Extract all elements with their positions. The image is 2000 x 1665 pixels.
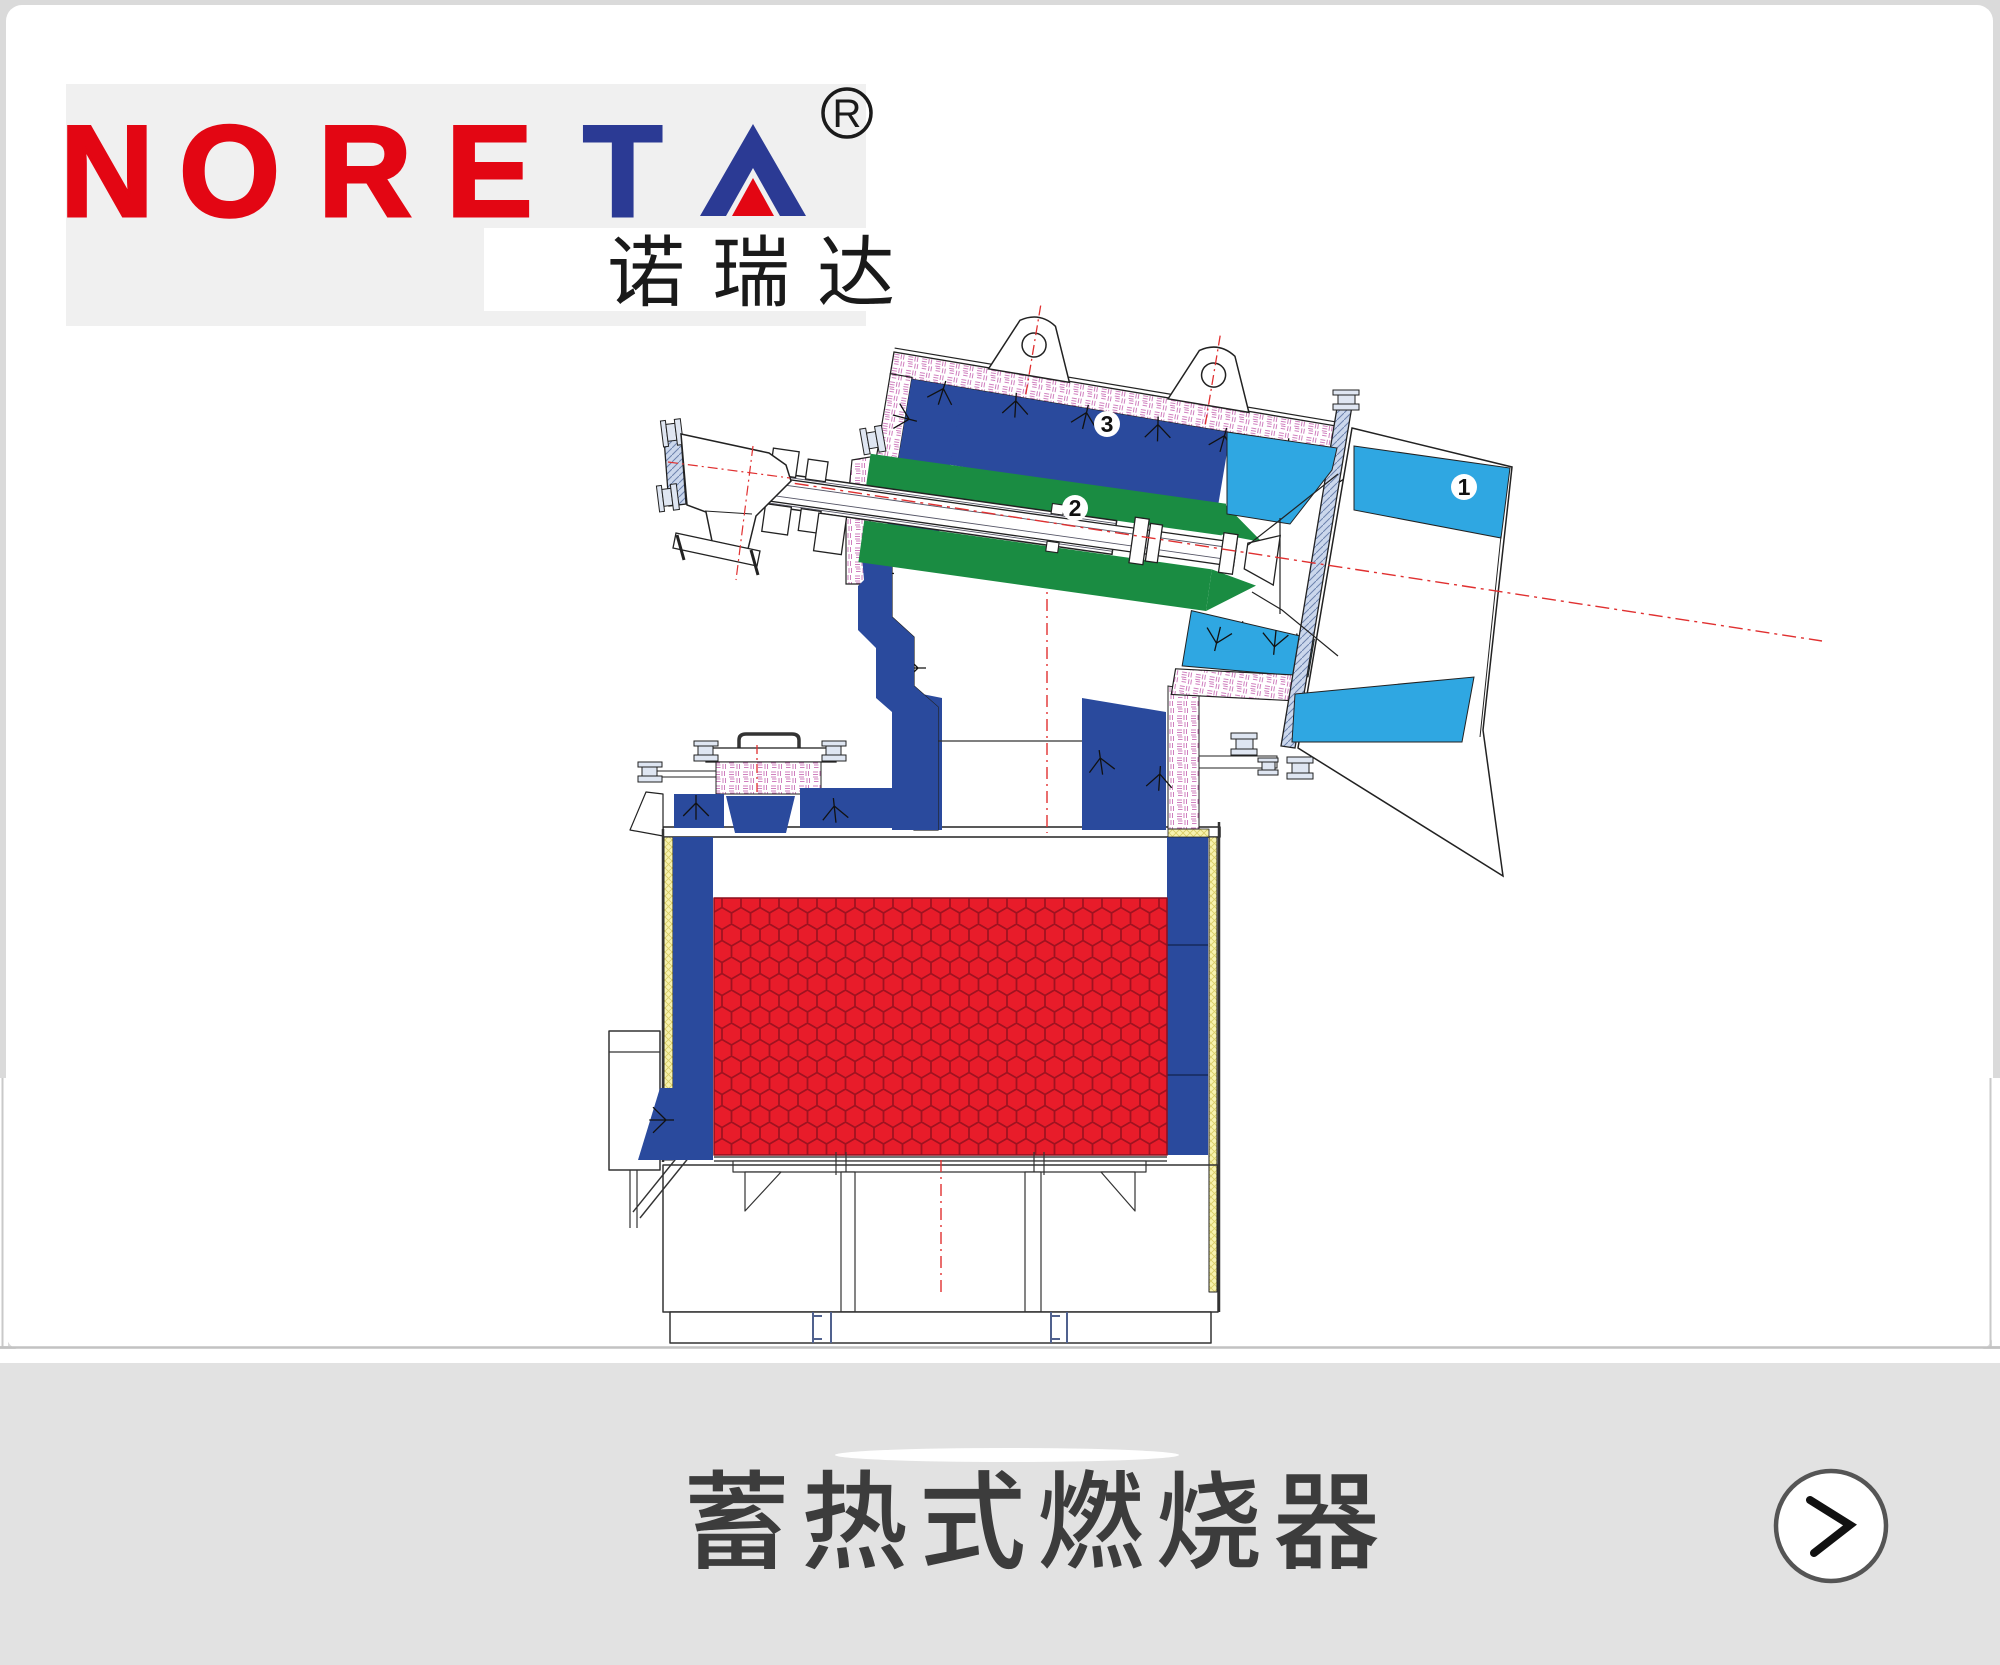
svg-text:E: E	[446, 98, 533, 244]
svg-text:T: T	[583, 98, 662, 244]
svg-text:2: 2	[1069, 495, 1082, 521]
svg-text:3: 3	[1101, 411, 1114, 437]
svg-text:R: R	[833, 92, 862, 136]
svg-text:1: 1	[1458, 474, 1471, 500]
svg-text:N: N	[60, 98, 154, 244]
svg-text:R: R	[318, 98, 412, 244]
svg-text:O: O	[179, 98, 280, 244]
